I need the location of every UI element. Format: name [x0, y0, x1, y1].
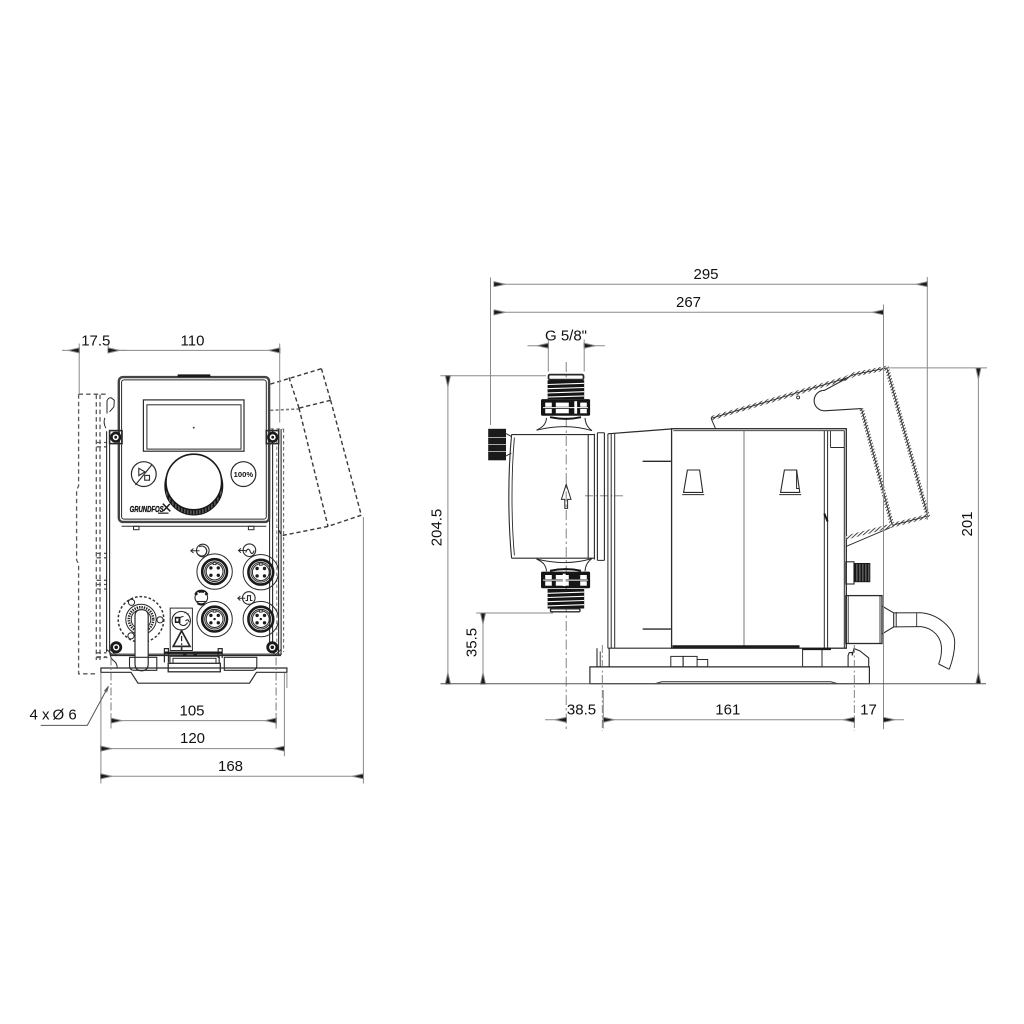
svg-text:168: 168	[218, 758, 243, 775]
svg-text:105: 105	[179, 702, 204, 719]
svg-text:267: 267	[676, 294, 701, 311]
svg-text:38.5: 38.5	[567, 701, 596, 718]
svg-text:17.5: 17.5	[81, 333, 110, 350]
svg-text:100%: 100%	[234, 470, 254, 479]
svg-text:35.5: 35.5	[464, 628, 481, 657]
svg-text:110: 110	[181, 333, 205, 350]
svg-text:G 5/8": G 5/8"	[545, 328, 587, 345]
svg-text:Ø 6: Ø 6	[53, 707, 77, 724]
svg-text:201: 201	[959, 511, 976, 536]
svg-text:161: 161	[715, 701, 740, 718]
svg-text:295: 295	[693, 266, 718, 283]
svg-text:120: 120	[180, 730, 205, 747]
svg-text:4 x: 4 x	[30, 707, 51, 724]
svg-text:17: 17	[860, 701, 877, 718]
svg-text:204.5: 204.5	[429, 509, 446, 547]
